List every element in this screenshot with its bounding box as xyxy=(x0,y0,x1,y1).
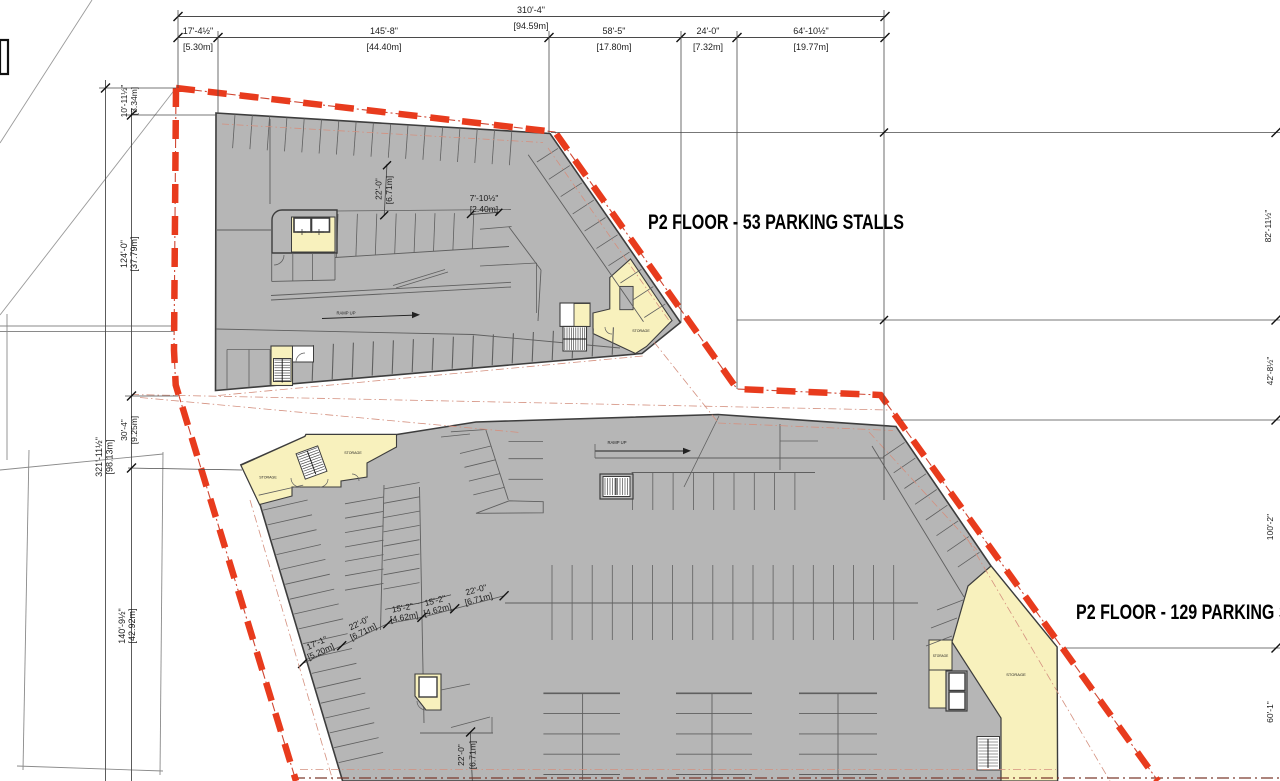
svg-text:17'-4½": 17'-4½" xyxy=(183,26,213,36)
svg-text:60'-1": 60'-1" xyxy=(1265,701,1275,723)
svg-text:310'-4": 310'-4" xyxy=(517,5,545,15)
svg-text:[5.30m]: [5.30m] xyxy=(183,42,213,52)
svg-text:P2 FLOOR - 53 PARKING STALLS: P2 FLOOR - 53 PARKING STALLS xyxy=(648,210,904,234)
svg-text:22'-0": 22'-0" xyxy=(456,744,466,766)
svg-text:[94.59m]: [94.59m] xyxy=(513,21,548,31)
svg-text:[37.79m]: [37.79m] xyxy=(129,236,139,271)
svg-text:STORAGE: STORAGE xyxy=(344,451,362,455)
svg-text:22'-0": 22'-0" xyxy=(374,178,384,200)
svg-text:145'-8": 145'-8" xyxy=(370,26,398,36)
svg-text:[3.34m]: [3.34m] xyxy=(129,87,139,115)
svg-text:[98.13m]: [98.13m] xyxy=(105,439,115,474)
svg-text:[44.40m]: [44.40m] xyxy=(366,42,401,52)
svg-text:64'-10½": 64'-10½" xyxy=(793,26,828,36)
svg-text:58'-5": 58'-5" xyxy=(603,26,626,36)
svg-text:140'-9½": 140'-9½" xyxy=(117,608,127,643)
svg-text:P2 FLOOR - 129 PARKING STALLS: P2 FLOOR - 129 PARKING STALLS xyxy=(1076,600,1280,624)
svg-text:100'-2": 100'-2" xyxy=(1265,514,1275,540)
svg-text:[6.71m]: [6.71m] xyxy=(384,176,394,204)
svg-text:124'-0": 124'-0" xyxy=(119,240,129,268)
svg-text:82'-11½": 82'-11½" xyxy=(1263,210,1273,243)
svg-text:[7.32m]: [7.32m] xyxy=(693,42,723,52)
svg-text:[17.80m]: [17.80m] xyxy=(596,42,631,52)
svg-text:[6.71m]: [6.71m] xyxy=(468,741,478,769)
svg-text:10'-11½": 10'-11½" xyxy=(119,85,129,118)
svg-text:30'-4": 30'-4" xyxy=(119,419,129,441)
svg-text:24'-0": 24'-0" xyxy=(697,26,720,36)
svg-text:[9.25m]: [9.25m] xyxy=(129,416,139,444)
svg-text:42'-8½": 42'-8½" xyxy=(1265,357,1275,386)
svg-text:STORAGE: STORAGE xyxy=(632,329,650,333)
svg-text:[42.92m]: [42.92m] xyxy=(127,608,137,643)
svg-text:RAMP UP: RAMP UP xyxy=(336,311,355,316)
svg-text:7'-10½": 7'-10½" xyxy=(470,193,499,203)
svg-text:RAMP UP: RAMP UP xyxy=(607,440,626,445)
svg-text:[19.77m]: [19.77m] xyxy=(793,42,828,52)
svg-text:321'-11½": 321'-11½" xyxy=(94,437,104,477)
svg-text:STORAGE: STORAGE xyxy=(933,654,949,658)
svg-text:STORAGE: STORAGE xyxy=(259,476,277,480)
svg-text:STORAGE: STORAGE xyxy=(1006,672,1026,677)
